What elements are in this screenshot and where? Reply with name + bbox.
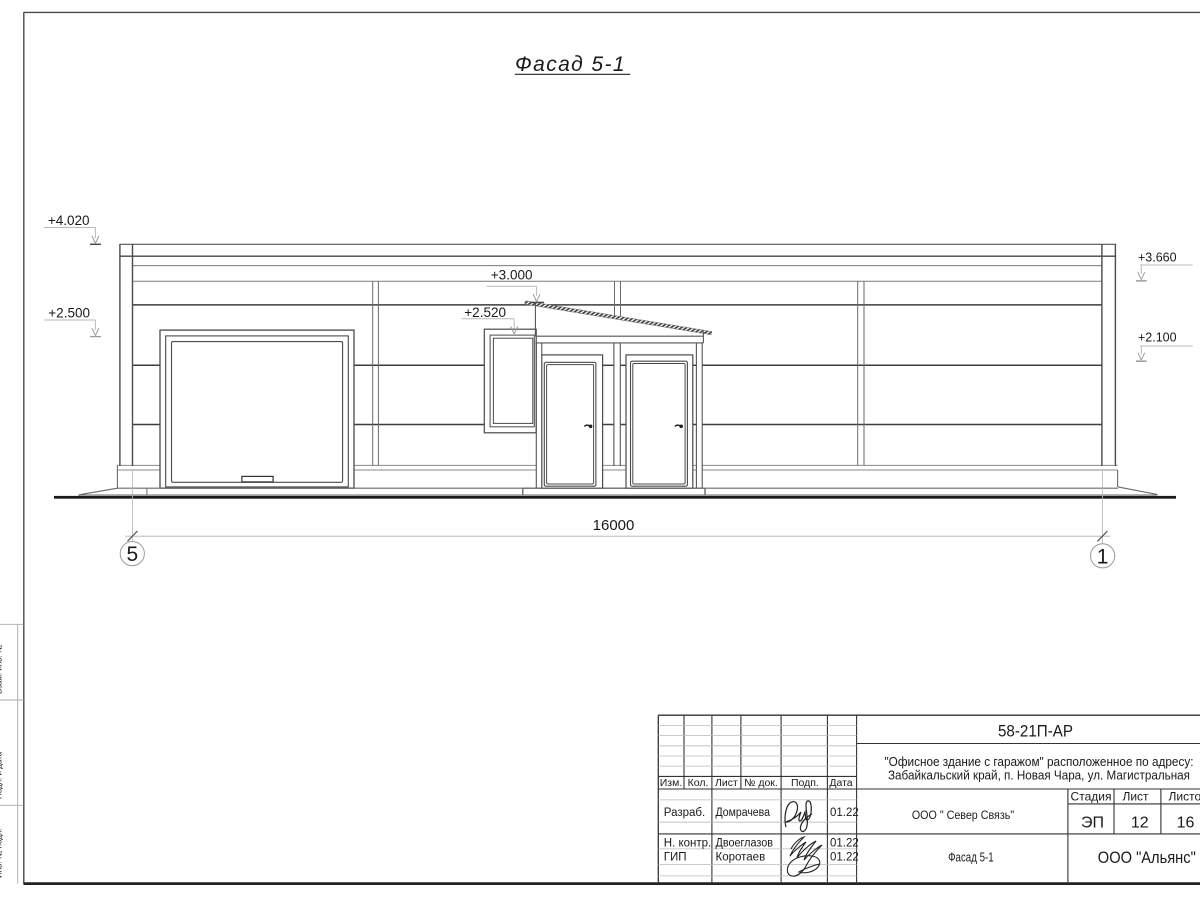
svg-text:Взам. инв. №: Взам. инв. № xyxy=(0,644,4,694)
svg-text:5: 5 xyxy=(126,543,138,566)
svg-text:Н. контр.: Н. контр. xyxy=(664,838,711,850)
svg-text:Лист: Лист xyxy=(1122,789,1149,803)
svg-text:+2.520: +2.520 xyxy=(464,305,506,320)
svg-text:Подп.: Подп. xyxy=(791,777,819,789)
svg-text:Листов: Листов xyxy=(1169,789,1200,803)
svg-text:Дата: Дата xyxy=(829,777,852,789)
svg-text:Подп. и дата: Подп. и дата xyxy=(0,751,4,799)
svg-text:ООО " Север Связь": ООО " Север Связь" xyxy=(912,808,1014,822)
svg-text:Фасад 5-1: Фасад 5-1 xyxy=(515,53,626,76)
svg-text:01.22: 01.22 xyxy=(830,851,859,863)
svg-text:+4.020: +4.020 xyxy=(48,213,90,228)
svg-text:Фасад 5-1: Фасад 5-1 xyxy=(948,850,994,864)
svg-text:Инв. № подл.: Инв. № подл. xyxy=(0,828,4,878)
svg-text:Стадия: Стадия xyxy=(1071,789,1112,803)
svg-text:+2.100: +2.100 xyxy=(1138,330,1177,344)
svg-text:"Офисное здание с гаражом" рас: "Офисное здание с гаражом" расположенное… xyxy=(885,755,1194,769)
svg-text:01.22: 01.22 xyxy=(830,807,859,819)
svg-text:Двоеглазов: Двоеглазов xyxy=(716,838,774,850)
svg-text:Лист: Лист xyxy=(715,777,738,789)
svg-text:+3.660: +3.660 xyxy=(1138,250,1177,264)
svg-text:Изм.: Изм. xyxy=(660,777,683,789)
svg-text:Коротаев: Коротаев xyxy=(716,851,766,863)
svg-text:12: 12 xyxy=(1131,814,1149,831)
svg-text:ГИП: ГИП xyxy=(664,851,687,863)
svg-text:ЭП: ЭП xyxy=(1081,814,1104,831)
svg-text:16000: 16000 xyxy=(593,517,635,534)
svg-text:1: 1 xyxy=(1097,545,1109,568)
svg-text:Домрачева: Домрачева xyxy=(716,807,771,819)
svg-text:58-21П-АР: 58-21П-АР xyxy=(998,722,1073,741)
svg-text:Кол.: Кол. xyxy=(688,777,709,789)
svg-text:№ док.: № док. xyxy=(744,777,778,789)
svg-text:01.22: 01.22 xyxy=(830,838,859,850)
svg-text:+2.500: +2.500 xyxy=(48,306,90,321)
svg-text:16: 16 xyxy=(1177,814,1195,831)
svg-text:Забайкальский край, п. Новая Ч: Забайкальский край, п. Новая Чара, ул. М… xyxy=(888,768,1190,782)
svg-text:+3.000: +3.000 xyxy=(491,267,533,282)
svg-text:ООО "Альянс": ООО "Альянс" xyxy=(1098,849,1196,867)
svg-text:Разраб.: Разраб. xyxy=(664,807,705,819)
